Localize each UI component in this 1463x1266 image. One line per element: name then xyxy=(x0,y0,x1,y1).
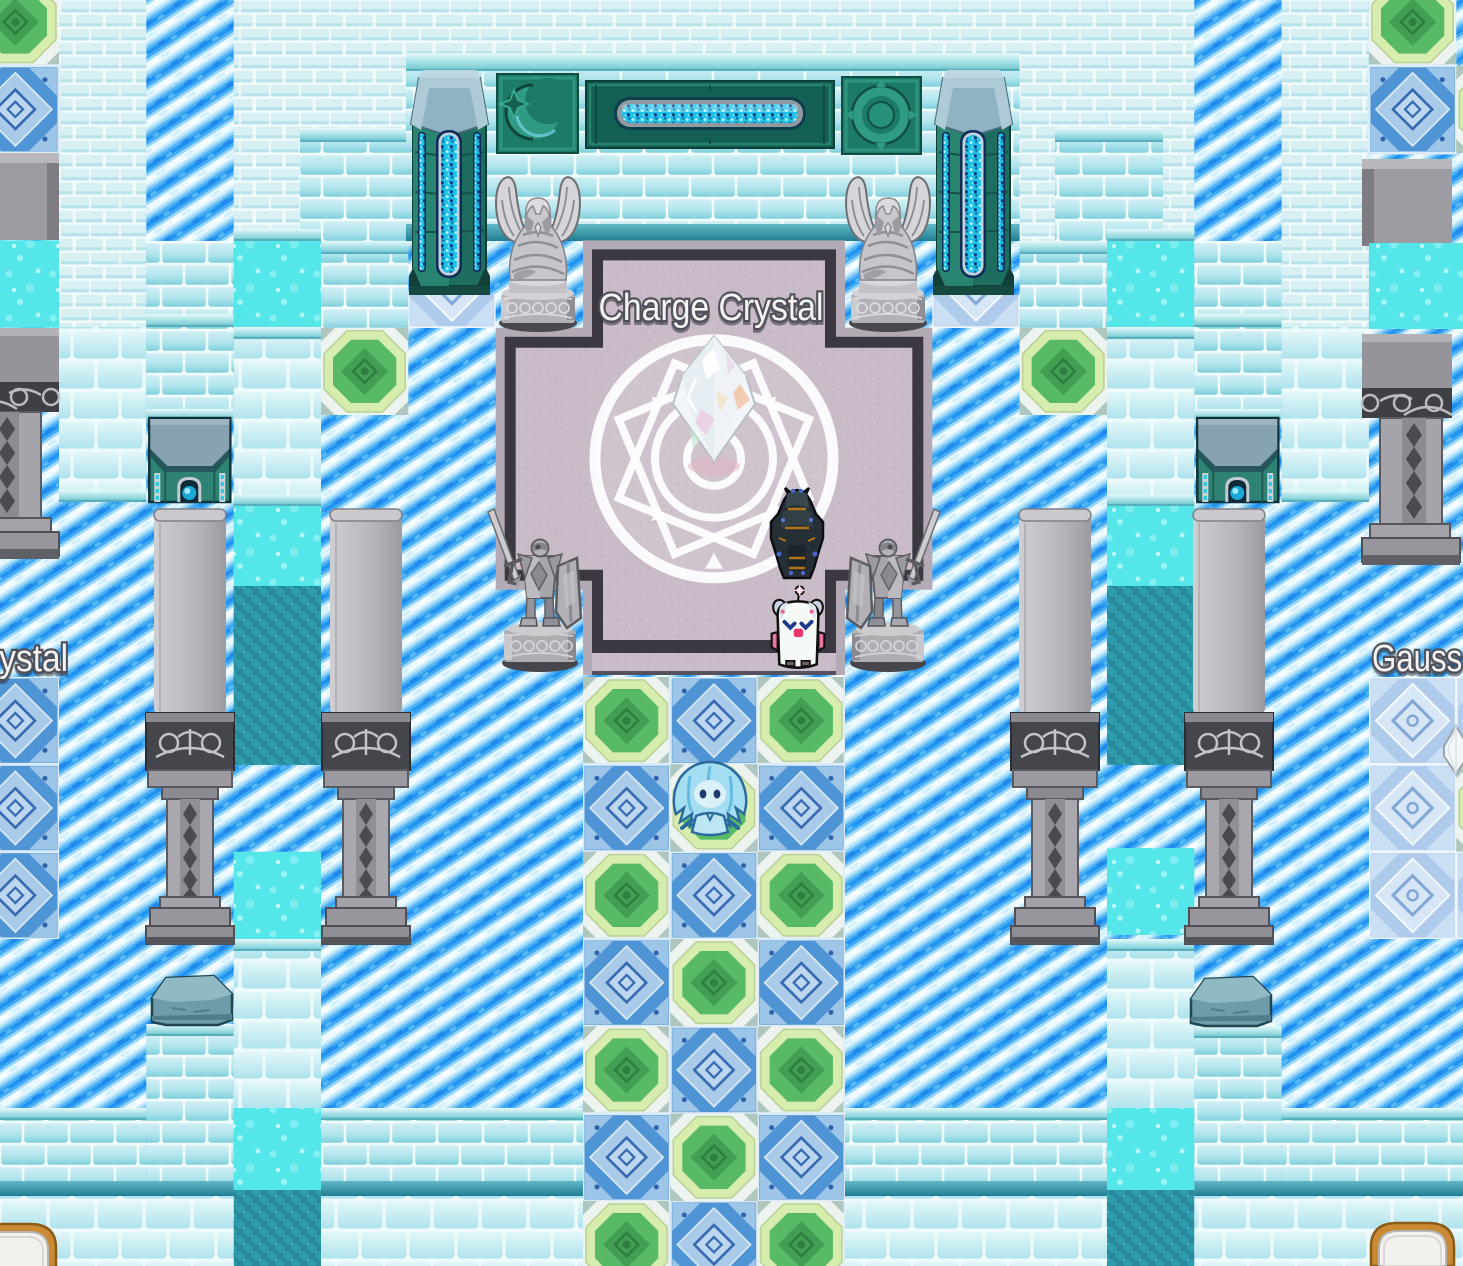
svg-text:Crystal: Crystal xyxy=(0,638,68,680)
svg-text:Charge Crystal: Charge Crystal xyxy=(599,287,824,329)
svg-text:Gauss Crystal: Gauss Crystal xyxy=(1372,638,1463,680)
